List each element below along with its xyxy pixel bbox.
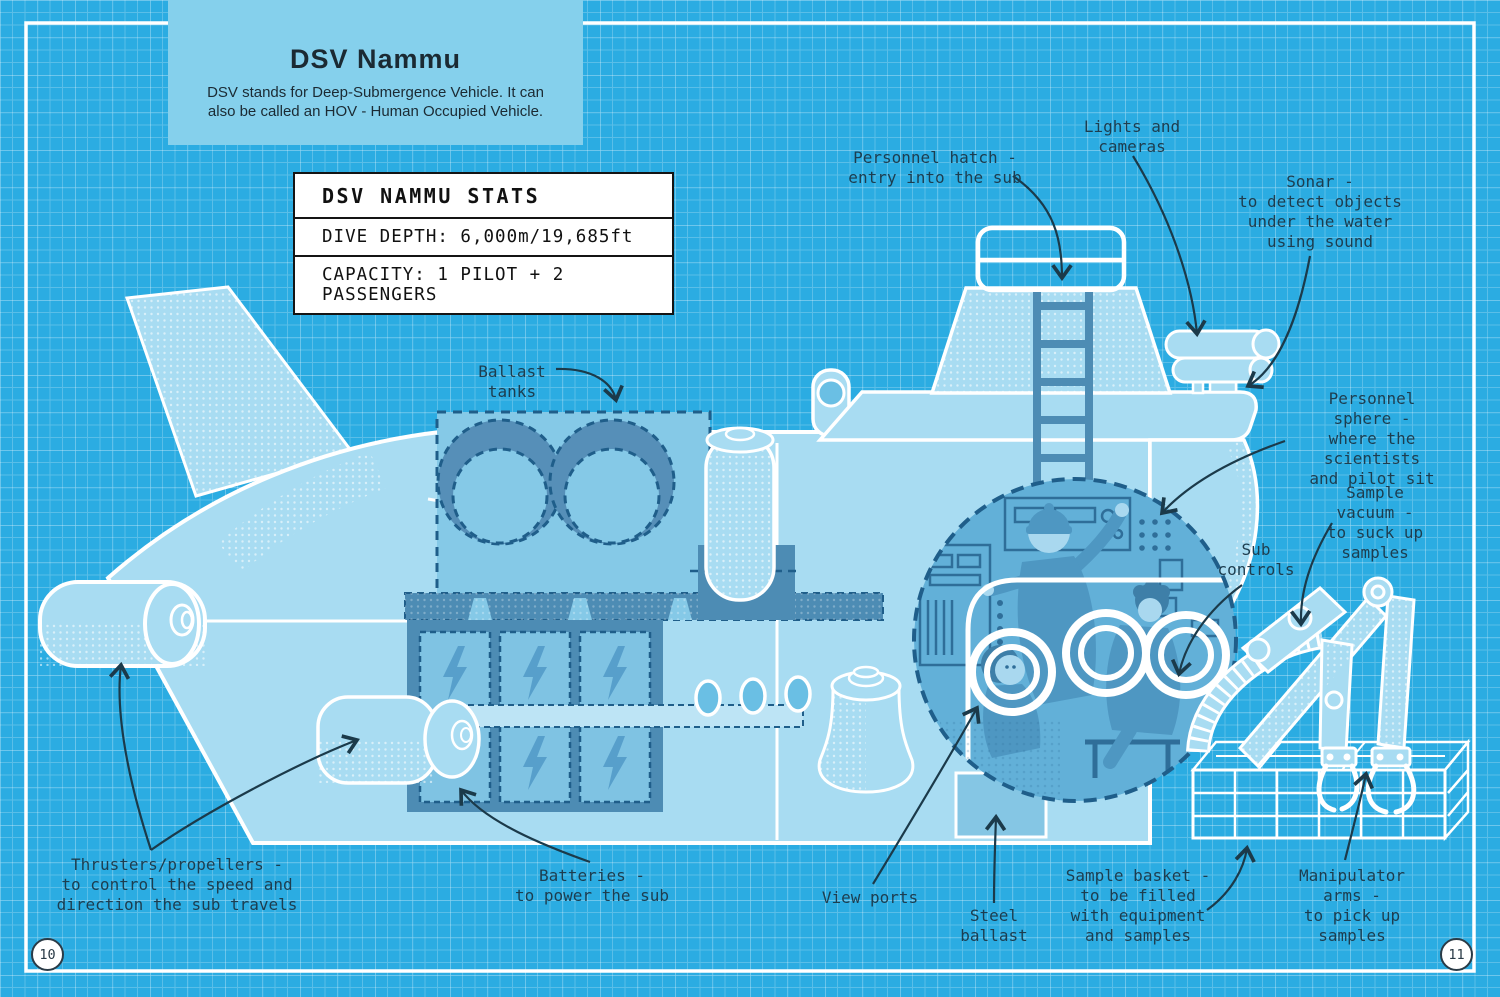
label-steel-ballast: Steel ballast	[960, 906, 1027, 946]
label-manipulator-arms: Manipulator arms - to pick up samples	[1278, 866, 1426, 946]
blueprint-illustration	[0, 0, 1500, 997]
label-sample-vacuum: Sample vacuum - to suck up samples	[1313, 483, 1438, 563]
label-lights-cameras: Lights and cameras	[1084, 117, 1180, 157]
stats-capacity: CAPACITY: 1 PILOT + 2 PASSENGERS	[295, 255, 672, 313]
stats-dive-depth: DIVE DEPTH: 6,000m/19,685ft	[295, 217, 672, 255]
page-number-right: 11	[1440, 938, 1473, 971]
label-sub-controls: Sub controls	[1217, 540, 1294, 580]
bottom-tank-cylinder	[819, 667, 913, 792]
page-subtitle: DSV stands for Deep-Submergence Vehicle.…	[168, 83, 583, 121]
label-sample-basket: Sample basket - to be filled with equipm…	[1066, 866, 1211, 946]
ballast-tanks-shape	[437, 412, 710, 595]
label-ballast-tanks: Ballast tanks	[478, 362, 545, 402]
label-sonar: Sonar - to detect objects under the wate…	[1238, 172, 1402, 252]
equipment-band	[405, 593, 883, 620]
thruster-mid	[318, 697, 479, 783]
title-card: DSV Nammu DSV stands for Deep-Submergenc…	[168, 0, 583, 145]
blueprint-spread: DSV Nammu DSV stands for Deep-Submergenc…	[0, 0, 1500, 997]
label-personnel-hatch: Personnel hatch - entry into the sub	[848, 148, 1021, 188]
label-thrusters: Thrusters/propellers - to control the sp…	[57, 855, 298, 915]
stats-card: DSV NAMMU STATS DIVE DEPTH: 6,000m/19,68…	[293, 172, 674, 315]
label-personnel-sphere: Personnel sphere - where the scientists …	[1308, 389, 1436, 489]
label-view-ports: View ports	[822, 888, 918, 908]
page-title: DSV Nammu	[168, 44, 583, 75]
porthole-icons	[696, 677, 810, 715]
label-batteries: Batteries - to power the sub	[515, 866, 669, 906]
page-number-left: 10	[31, 938, 64, 971]
stats-header: DSV NAMMU STATS	[295, 174, 672, 217]
